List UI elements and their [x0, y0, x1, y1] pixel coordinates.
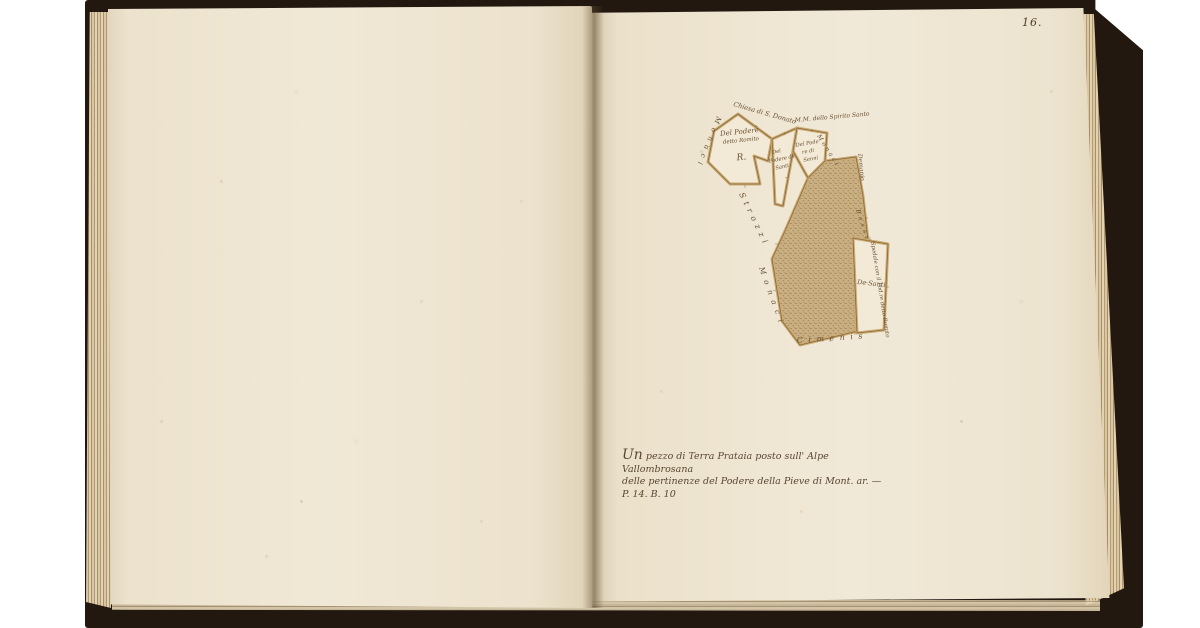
page-number: 16. — [1022, 16, 1043, 29]
foxing-spots-right — [960, 420, 963, 423]
book-gutter — [582, 6, 604, 608]
foxing-spots-left — [300, 500, 303, 503]
caption-line-1: Un pezzo di Terra Prataia posto sull' Al… — [622, 449, 882, 476]
label-strozzi: Strozzi — [737, 191, 771, 249]
caption-line-1-text: pezzo di Terra Prataia posto sull' Alpe … — [622, 451, 829, 475]
estate-map: Chiesa di S. Donato M.M. dello Spirito S… — [655, 82, 985, 392]
caption-line-2: delle pertinenze del Podere della Pieve … — [622, 476, 882, 501]
caption-lead: Un — [622, 447, 643, 463]
label-spirito-santo: M.M. dello Spirito Santo — [794, 110, 871, 124]
book-scan: 16. — [0, 0, 1200, 628]
svg-text:R.: R. — [735, 152, 747, 163]
left-blank-page — [108, 6, 592, 608]
map-caption: Un pezzo di Terra Prataia posto sull' Al… — [622, 449, 882, 501]
left-page-stack-edge — [86, 12, 111, 608]
